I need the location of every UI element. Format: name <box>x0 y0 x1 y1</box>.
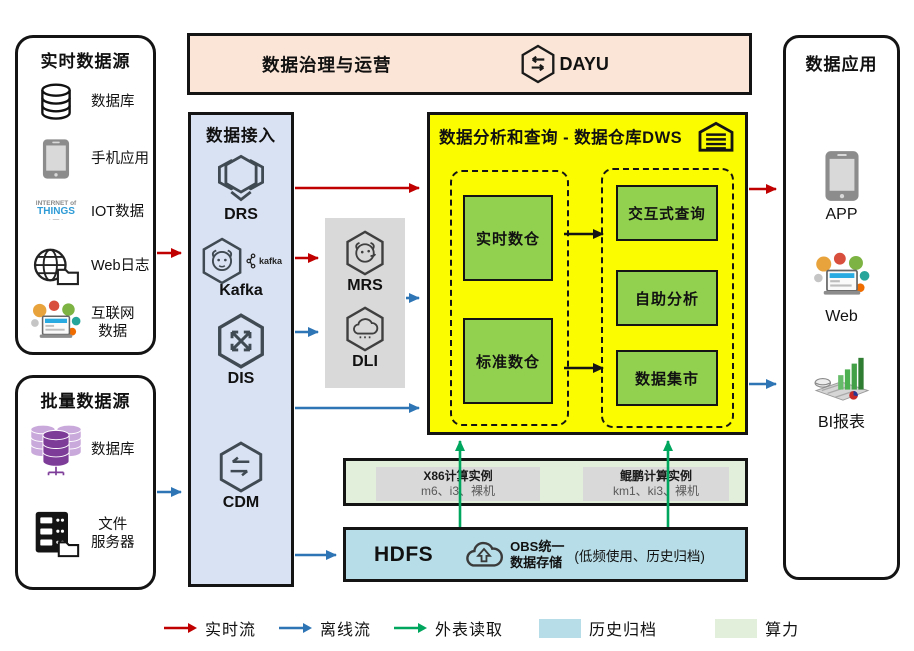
source-item-label: 数据库 <box>91 93 135 111</box>
source-item-web-log: Web日志 <box>28 246 150 286</box>
bi-report-icon <box>812 354 872 404</box>
module-standard-warehouse: 标准数仓 <box>463 318 553 404</box>
label-line1: 互联网 <box>91 306 135 322</box>
module-realtime-warehouse: 实时数仓 <box>463 195 553 281</box>
kafka-logo: kafka <box>246 253 282 269</box>
service-label: MRS <box>347 277 383 295</box>
dws-title: 数据分析和查询 - 数据仓库DWS <box>439 124 682 148</box>
mrs-icon <box>343 230 387 276</box>
obs-title: OBS统一 数据存储 <box>510 539 564 570</box>
app-item-label: BI报表 <box>818 408 865 432</box>
dayu-label: DAYU <box>560 54 609 75</box>
ingestion-title: 数据接入 <box>191 122 291 146</box>
file-server-icon <box>28 510 84 558</box>
red-arrow-icon <box>163 622 197 634</box>
source-item-label: 手机应用 <box>91 150 149 168</box>
compute-band: X86计算实例 m6、i3、裸机 鲲鹏计算实例 km1、ki3、裸机 <box>343 458 748 506</box>
service-label: Kafka <box>219 282 263 300</box>
legend-item-history-archive: 历史归档 <box>539 616 657 640</box>
module-self-service-analysis: 自助分析 <box>616 270 718 326</box>
instance-specs: m6、i3、裸机 <box>421 484 495 499</box>
source-item-mobile-app: 手机应用 <box>28 138 149 180</box>
governance-title: 数据治理与运营 <box>262 52 392 77</box>
legend: 实时流 离线流 外表读取 历史归档 算力 <box>163 612 799 644</box>
cloud-upload-icon <box>463 539 505 570</box>
mobile-phone-icon <box>28 138 84 180</box>
database-icon <box>28 82 84 122</box>
instance-name: 鲲鹏计算实例 <box>620 469 692 484</box>
app-item-web: Web <box>786 252 897 326</box>
label-line1: 文件 <box>98 517 127 533</box>
obs-storage: OBS统一 数据存储 <box>463 539 564 570</box>
dayu-product: DAYU <box>520 44 609 84</box>
service-kafka-icons: kafka <box>191 237 291 285</box>
applications-title: 数据应用 <box>786 50 897 75</box>
service-cdm: CDM <box>191 441 291 512</box>
source-item-batch-database: 数据库 <box>28 420 135 480</box>
applications-panel: 数据应用 APP Web BI报表 <box>783 35 900 580</box>
label-line2: 数据 <box>98 324 127 340</box>
legend-item-realtime-flow: 实时流 <box>163 616 256 640</box>
legend-item-compute-power: 算力 <box>715 616 799 640</box>
legend-label: 外表读取 <box>435 616 503 640</box>
source-item-label: Web日志 <box>91 257 150 275</box>
mobile-phone-icon <box>824 150 860 202</box>
ingestion-panel: 数据接入 DRS kafka Kafka DIS <box>188 112 294 587</box>
source-item-file-server: 文件服务器 <box>28 510 135 558</box>
hdfs-note: (低频使用、历史归档) <box>574 545 705 565</box>
hdfs-label: HDFS <box>374 543 433 567</box>
legend-item-external-read: 外表读取 <box>393 616 503 640</box>
label-line2: 服务器 <box>91 535 135 551</box>
cdm-icon <box>217 441 265 493</box>
obs-title-line2: 数据存储 <box>510 555 564 571</box>
service-kafka: Kafka <box>191 281 291 300</box>
legend-label: 历史归档 <box>589 616 657 640</box>
source-item-label: 互联网数据 <box>91 305 135 341</box>
iot-text-line3: · — · <box>49 217 63 224</box>
realtime-sources-panel: 实时数据源 数据库 手机应用 INTERNET of THINGS · — · … <box>15 35 156 355</box>
architecture-diagram: 实时数据源 数据库 手机应用 INTERNET of THINGS · — · … <box>0 0 914 651</box>
legend-label: 实时流 <box>205 616 256 640</box>
batch-sources-title: 批量数据源 <box>18 387 153 412</box>
dws-panel: 数据分析和查询 - 数据仓库DWS 实时数仓 标准数仓 交互式查询 自助分析 数… <box>427 112 748 435</box>
realtime-sources-title: 实时数据源 <box>18 47 153 72</box>
kunpeng-instance-box: 鲲鹏计算实例 km1、ki3、裸机 <box>583 467 729 501</box>
legend-label: 离线流 <box>320 616 371 640</box>
web-log-icon <box>28 246 84 286</box>
service-label: DLI <box>352 353 378 371</box>
app-item-label: APP <box>825 206 857 224</box>
app-item-label: Web <box>825 308 858 326</box>
history-archive-swatch <box>539 619 581 638</box>
dli-icon <box>343 306 387 352</box>
legend-item-offline-flow: 离线流 <box>278 616 371 640</box>
module-data-mart: 数据集市 <box>616 350 718 406</box>
service-label: DRS <box>224 206 258 224</box>
drs-icon <box>215 151 267 205</box>
instance-specs: km1、ki3、裸机 <box>613 484 699 499</box>
source-item-internet-data: 互联网数据 <box>28 300 135 346</box>
service-label: CDM <box>223 494 259 512</box>
service-dis: DIS <box>191 313 291 388</box>
hdfs-storage-band: HDFS OBS统一 数据存储 (低频使用、历史归档) <box>343 527 748 582</box>
service-drs: DRS <box>191 151 291 224</box>
instance-name: X86计算实例 <box>423 469 492 484</box>
legend-label: 算力 <box>765 616 799 640</box>
source-item-label: IOT数据 <box>91 203 144 221</box>
blue-arrow-icon <box>278 622 312 634</box>
source-item-label: 文件服务器 <box>91 516 135 552</box>
green-arrow-icon <box>393 622 427 634</box>
dayu-icon <box>520 44 556 84</box>
batch-sources-panel: 批量数据源 数据库 文件服务器 <box>15 375 156 590</box>
web-portal-icon <box>813 252 871 304</box>
app-item-app: APP <box>786 150 897 224</box>
internet-data-icon <box>28 300 84 346</box>
service-label: DIS <box>228 370 255 388</box>
service-mrs: MRS <box>325 230 405 295</box>
kafka-logo-text: kafka <box>259 256 282 266</box>
source-item-label: 数据库 <box>91 441 135 459</box>
dis-icon <box>215 313 267 369</box>
x86-instance-box: X86计算实例 m6、i3、裸机 <box>376 467 540 501</box>
compute-power-swatch <box>715 619 757 638</box>
processing-panel: MRS DLI <box>325 218 405 388</box>
service-dli: DLI <box>325 306 405 371</box>
warehouse-icon <box>697 121 735 153</box>
app-item-bi-report: BI报表 <box>786 354 897 432</box>
governance-banner: 数据治理与运营 DAYU <box>187 33 752 95</box>
database-cluster-icon <box>28 420 84 480</box>
source-item-database: 数据库 <box>28 82 135 122</box>
module-interactive-query: 交互式查询 <box>616 185 718 241</box>
obs-title-line1: OBS统一 <box>510 539 564 555</box>
kafka-icon <box>200 237 244 285</box>
iot-wordcloud-icon: INTERNET of THINGS · — · <box>28 190 84 234</box>
source-item-iot: INTERNET of THINGS · — · IOT数据 <box>28 190 144 234</box>
